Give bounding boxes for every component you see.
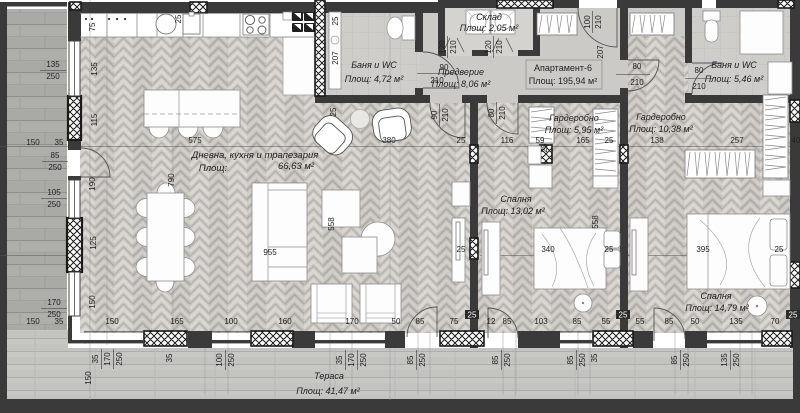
svg-text:250: 250 bbox=[682, 353, 691, 367]
svg-text:100: 100 bbox=[215, 353, 224, 367]
svg-text:135: 135 bbox=[729, 317, 743, 326]
svg-text:210: 210 bbox=[630, 78, 644, 87]
svg-text:35: 35 bbox=[55, 317, 64, 326]
svg-text:90: 90 bbox=[430, 110, 439, 119]
svg-text:75: 75 bbox=[450, 317, 459, 326]
svg-text:125: 125 bbox=[89, 236, 98, 250]
svg-text:207: 207 bbox=[596, 45, 605, 59]
svg-text:210: 210 bbox=[594, 15, 603, 29]
svg-text:25: 25 bbox=[174, 14, 183, 23]
svg-text:250: 250 bbox=[418, 353, 427, 367]
svg-text:50: 50 bbox=[691, 317, 700, 326]
svg-text:250: 250 bbox=[48, 163, 62, 172]
svg-text:25: 25 bbox=[468, 311, 477, 320]
svg-text:12: 12 bbox=[487, 317, 496, 326]
svg-text:85: 85 bbox=[406, 355, 415, 364]
svg-text:Площ: 2,05 м²: Площ: 2,05 м² bbox=[460, 23, 519, 33]
svg-text:35: 35 bbox=[91, 354, 100, 363]
svg-text:Площ:: Площ: bbox=[199, 163, 228, 174]
svg-text:35: 35 bbox=[165, 353, 174, 362]
svg-text:210: 210 bbox=[441, 108, 450, 122]
svg-text:Предверие: Предверие bbox=[438, 67, 484, 77]
svg-text:150: 150 bbox=[88, 295, 97, 309]
svg-text:25: 25 bbox=[457, 245, 466, 254]
svg-text:25: 25 bbox=[331, 16, 340, 25]
svg-text:Тераса: Тераса bbox=[314, 371, 344, 381]
svg-text:340: 340 bbox=[541, 245, 555, 254]
svg-text:Склад: Склад bbox=[476, 12, 502, 22]
svg-text:558: 558 bbox=[591, 215, 600, 229]
svg-text:790: 790 bbox=[167, 173, 176, 187]
svg-text:165: 165 bbox=[170, 317, 184, 326]
svg-text:80: 80 bbox=[487, 108, 496, 117]
svg-text:85: 85 bbox=[670, 355, 679, 364]
svg-text:25: 25 bbox=[619, 311, 628, 320]
svg-text:35: 35 bbox=[55, 138, 64, 147]
svg-text:955: 955 bbox=[263, 248, 277, 257]
svg-text:70: 70 bbox=[771, 317, 780, 326]
svg-text:170: 170 bbox=[345, 317, 359, 326]
svg-text:150: 150 bbox=[26, 138, 40, 147]
svg-text:40: 40 bbox=[792, 136, 800, 145]
svg-text:59: 59 bbox=[536, 136, 545, 145]
svg-text:Апартамент-6: Апартамент-6 bbox=[534, 63, 592, 73]
svg-text:115: 115 bbox=[90, 113, 99, 126]
svg-text:85: 85 bbox=[503, 317, 512, 326]
svg-text:170: 170 bbox=[47, 298, 61, 307]
svg-text:250: 250 bbox=[115, 352, 124, 366]
svg-text:105: 105 bbox=[47, 188, 61, 197]
svg-text:Площ: 14,79 м²: Площ: 14,79 м² bbox=[685, 303, 749, 313]
svg-text:135: 135 bbox=[90, 62, 99, 76]
svg-text:170: 170 bbox=[347, 353, 356, 367]
svg-text:Площ: 13,02 м²: Площ: 13,02 м² bbox=[481, 206, 545, 216]
svg-text:25: 25 bbox=[457, 136, 466, 145]
svg-text:85: 85 bbox=[51, 151, 60, 160]
svg-text:150: 150 bbox=[26, 317, 40, 326]
svg-text:250: 250 bbox=[46, 72, 60, 81]
svg-text:120: 120 bbox=[438, 40, 447, 54]
svg-text:25: 25 bbox=[329, 107, 338, 116]
svg-text:35: 35 bbox=[335, 355, 344, 364]
svg-text:Площ: 8,06 м²: Площ: 8,06 м² bbox=[432, 79, 491, 89]
svg-text:Площ: 5,46 м²: Площ: 5,46 м² bbox=[705, 74, 764, 84]
svg-text:395: 395 bbox=[696, 245, 710, 254]
svg-text:35: 35 bbox=[590, 353, 599, 362]
svg-text:85: 85 bbox=[491, 355, 500, 364]
svg-text:25: 25 bbox=[775, 245, 784, 254]
svg-text:80: 80 bbox=[633, 62, 642, 71]
svg-text:135: 135 bbox=[720, 353, 729, 367]
svg-text:250: 250 bbox=[503, 353, 512, 367]
svg-text:Гардеробно: Гардеробно bbox=[549, 113, 599, 123]
svg-text:55: 55 bbox=[636, 317, 645, 326]
svg-text:Дневна, кухня и трапезария: Дневна, кухня и трапезария bbox=[191, 150, 319, 161]
svg-text:25: 25 bbox=[605, 136, 614, 145]
svg-text:Спалня: Спалня bbox=[500, 194, 531, 204]
svg-text:250: 250 bbox=[47, 200, 61, 209]
svg-text:250: 250 bbox=[578, 353, 587, 367]
svg-text:Баня и WC: Баня и WC bbox=[711, 60, 757, 70]
svg-text:100: 100 bbox=[583, 15, 592, 29]
svg-text:250: 250 bbox=[732, 353, 741, 367]
svg-text:50: 50 bbox=[392, 317, 401, 326]
svg-text:66,63 м²: 66,63 м² bbox=[278, 161, 315, 172]
svg-text:80: 80 bbox=[695, 66, 704, 75]
svg-text:Площ: 10,38 м²: Площ: 10,38 м² bbox=[629, 124, 693, 134]
svg-text:558: 558 bbox=[327, 217, 336, 231]
svg-text:85: 85 bbox=[665, 317, 674, 326]
svg-text:Площ: 4,72 м²: Площ: 4,72 м² bbox=[345, 74, 404, 84]
svg-text:207: 207 bbox=[331, 51, 340, 65]
svg-text:Гардеробно: Гардеробно bbox=[636, 112, 686, 122]
svg-text:575: 575 bbox=[188, 136, 202, 145]
svg-text:25: 25 bbox=[789, 311, 798, 320]
svg-text:138: 138 bbox=[650, 136, 664, 145]
svg-text:75: 75 bbox=[88, 22, 97, 31]
svg-text:120: 120 bbox=[484, 40, 493, 54]
svg-text:190: 190 bbox=[88, 177, 97, 191]
svg-text:150: 150 bbox=[84, 371, 93, 385]
svg-text:85: 85 bbox=[573, 317, 582, 326]
svg-text:250: 250 bbox=[227, 353, 236, 367]
svg-text:380: 380 bbox=[382, 136, 396, 145]
svg-text:116: 116 bbox=[501, 136, 514, 145]
svg-text:25: 25 bbox=[605, 245, 614, 254]
svg-text:55: 55 bbox=[602, 317, 611, 326]
svg-text:165: 165 bbox=[576, 136, 590, 145]
svg-text:100: 100 bbox=[224, 317, 238, 326]
svg-text:135: 135 bbox=[46, 60, 60, 69]
svg-text:Площ: 5,95 м²: Площ: 5,95 м² bbox=[545, 125, 604, 135]
svg-text:257: 257 bbox=[730, 136, 744, 145]
svg-text:85: 85 bbox=[566, 355, 575, 364]
svg-text:210: 210 bbox=[495, 40, 504, 54]
svg-text:250: 250 bbox=[359, 353, 368, 367]
svg-text:210: 210 bbox=[498, 106, 507, 120]
svg-text:Площ: 195,94 м²: Площ: 195,94 м² bbox=[529, 76, 597, 86]
svg-text:Баня и WC: Баня и WC bbox=[351, 60, 397, 70]
svg-text:Площ: 41,47 м²: Площ: 41,47 м² bbox=[296, 386, 360, 396]
svg-text:Спалня: Спалня bbox=[700, 291, 731, 301]
svg-text:210: 210 bbox=[449, 40, 458, 54]
svg-text:103: 103 bbox=[534, 317, 548, 326]
svg-text:170: 170 bbox=[103, 352, 112, 366]
svg-text:160: 160 bbox=[278, 317, 292, 326]
svg-text:150: 150 bbox=[105, 317, 119, 326]
svg-text:85: 85 bbox=[416, 317, 425, 326]
